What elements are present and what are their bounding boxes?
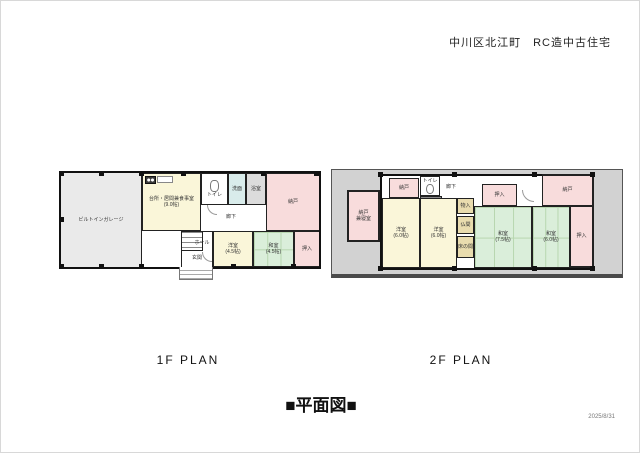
room-closet-1f: 押入 — [294, 231, 319, 267]
room-butsuma-2f: 仏間 — [457, 216, 474, 234]
entrance-porch — [179, 267, 213, 280]
pillar — [261, 171, 266, 176]
pillar — [139, 264, 144, 269]
room-closet-top-label: 押入 — [494, 192, 504, 198]
room-western2-size: (6.0帖) — [431, 233, 446, 239]
date-stamp: 2025/8/31 — [588, 414, 615, 420]
pillar — [59, 264, 64, 269]
floorplan-1f: ビルトインガレージ 台所・居間兼食事室 (9.0帖) トイレ 洗面 浴室 納戸 … — [59, 171, 321, 269]
room-butsuma-label: 仏間 — [460, 222, 470, 228]
room-tokonoma-2f: 床の間 — [457, 236, 474, 258]
room-japanese1-size: (7.5帖) — [495, 237, 510, 243]
room-western2-2f: 洋室 (6.0帖) — [420, 198, 457, 268]
room-storage-right-2f: 納戸 — [542, 174, 594, 206]
room-japanese-1f: 和室 (4.5帖) — [253, 231, 294, 267]
room-monoire-2f: 物入 — [457, 198, 474, 214]
room-closet-right-label: 押入 — [576, 233, 586, 239]
floorplan-2f: 納戸 兼寝室 納戸 トイレ 廊下 洋室 (6.0帖) 洋室 (6.0帖) 物入 … — [331, 169, 623, 278]
room-toilet-1f-label: トイレ — [207, 192, 222, 198]
pillar — [590, 266, 595, 271]
room-japanese2-size: (6.0帖) — [543, 237, 558, 243]
toilet-icon — [210, 180, 219, 192]
room-storage-top-label: 納戸 — [399, 185, 409, 191]
pillar — [99, 264, 104, 269]
pillar — [59, 217, 64, 222]
page: 中川区北江町 RC造中古住宅 ビルトインガレージ 台所・居間兼食事室 (9.0帖… — [0, 0, 640, 453]
pillar — [452, 266, 457, 271]
room-closet-1f-label: 押入 — [302, 246, 312, 252]
room-storage-1f: 納戸 — [266, 173, 319, 231]
room-japanese-1f-size: (4.5帖) — [266, 249, 281, 255]
corridor-1f-label: 廊下 — [211, 214, 251, 220]
plan-title-2f: 2F PLAN — [401, 353, 521, 367]
plan-title-1f: 1F PLAN — [128, 353, 248, 367]
room-monoire-label: 物入 — [460, 203, 470, 209]
hall-label: ホール — [189, 240, 215, 246]
room-western1-2f: 洋室 (6.0帖) — [382, 198, 420, 268]
toilet-icon — [426, 184, 434, 194]
room-tokonoma-label: 床の間 — [458, 244, 473, 250]
room-washroom-1f-label: 洗面 — [232, 186, 242, 192]
listing-title: 中川区北江町 RC造中古住宅 — [449, 34, 611, 50]
pillar — [99, 171, 104, 176]
room-closet-right-2f: 押入 — [570, 206, 594, 268]
room-western-1f: 洋室 (4.5帖) — [213, 231, 253, 267]
pillar — [532, 266, 537, 271]
pillar — [452, 172, 457, 177]
pillar — [532, 172, 537, 177]
room-japanese2-2f: 和室 (6.0帖) — [532, 206, 570, 268]
room-bath-1f: 浴室 — [246, 173, 266, 205]
room-storage-right-label: 納戸 — [562, 187, 572, 193]
room-toilet-2f: トイレ — [420, 176, 440, 196]
room-western-1f-size: (4.5帖) — [225, 249, 240, 255]
figure-caption: ■平面図■ — [241, 391, 401, 416]
room-storage-1f-label: 納戸 — [288, 199, 298, 205]
pillar — [181, 171, 186, 176]
pillar — [314, 171, 319, 176]
stove-icon — [145, 176, 156, 184]
room-garage: ビルトインガレージ — [61, 173, 142, 267]
pillar — [378, 266, 383, 271]
pillar — [378, 172, 383, 177]
pillar — [139, 171, 144, 176]
pillar — [231, 264, 236, 269]
room-toilet-1f: トイレ — [201, 173, 228, 205]
room-garage-label: ビルトインガレージ — [79, 217, 124, 223]
room-bath-1f-label: 浴室 — [251, 186, 261, 192]
room-storage-bedroom-label2: 兼寝室 — [356, 216, 371, 222]
pillar — [291, 264, 296, 269]
door-arc — [207, 205, 217, 215]
room-storage-bedroom-2f: 納戸 兼寝室 — [347, 190, 380, 242]
room-closet-top-2f: 押入 — [482, 184, 517, 206]
kitchen-sink-icon — [157, 176, 173, 183]
corridor-2f-label: 廊下 — [440, 184, 462, 190]
pillar — [590, 172, 595, 177]
room-ldk-size: (9.0帖) — [164, 202, 179, 208]
room-washroom-1f: 洗面 — [228, 173, 246, 205]
room-western1-size: (6.0帖) — [393, 233, 408, 239]
room-japanese1-2f: 和室 (7.5帖) — [474, 206, 532, 268]
pillar — [59, 171, 64, 176]
room-storage-top-2f: 納戸 — [389, 178, 419, 198]
